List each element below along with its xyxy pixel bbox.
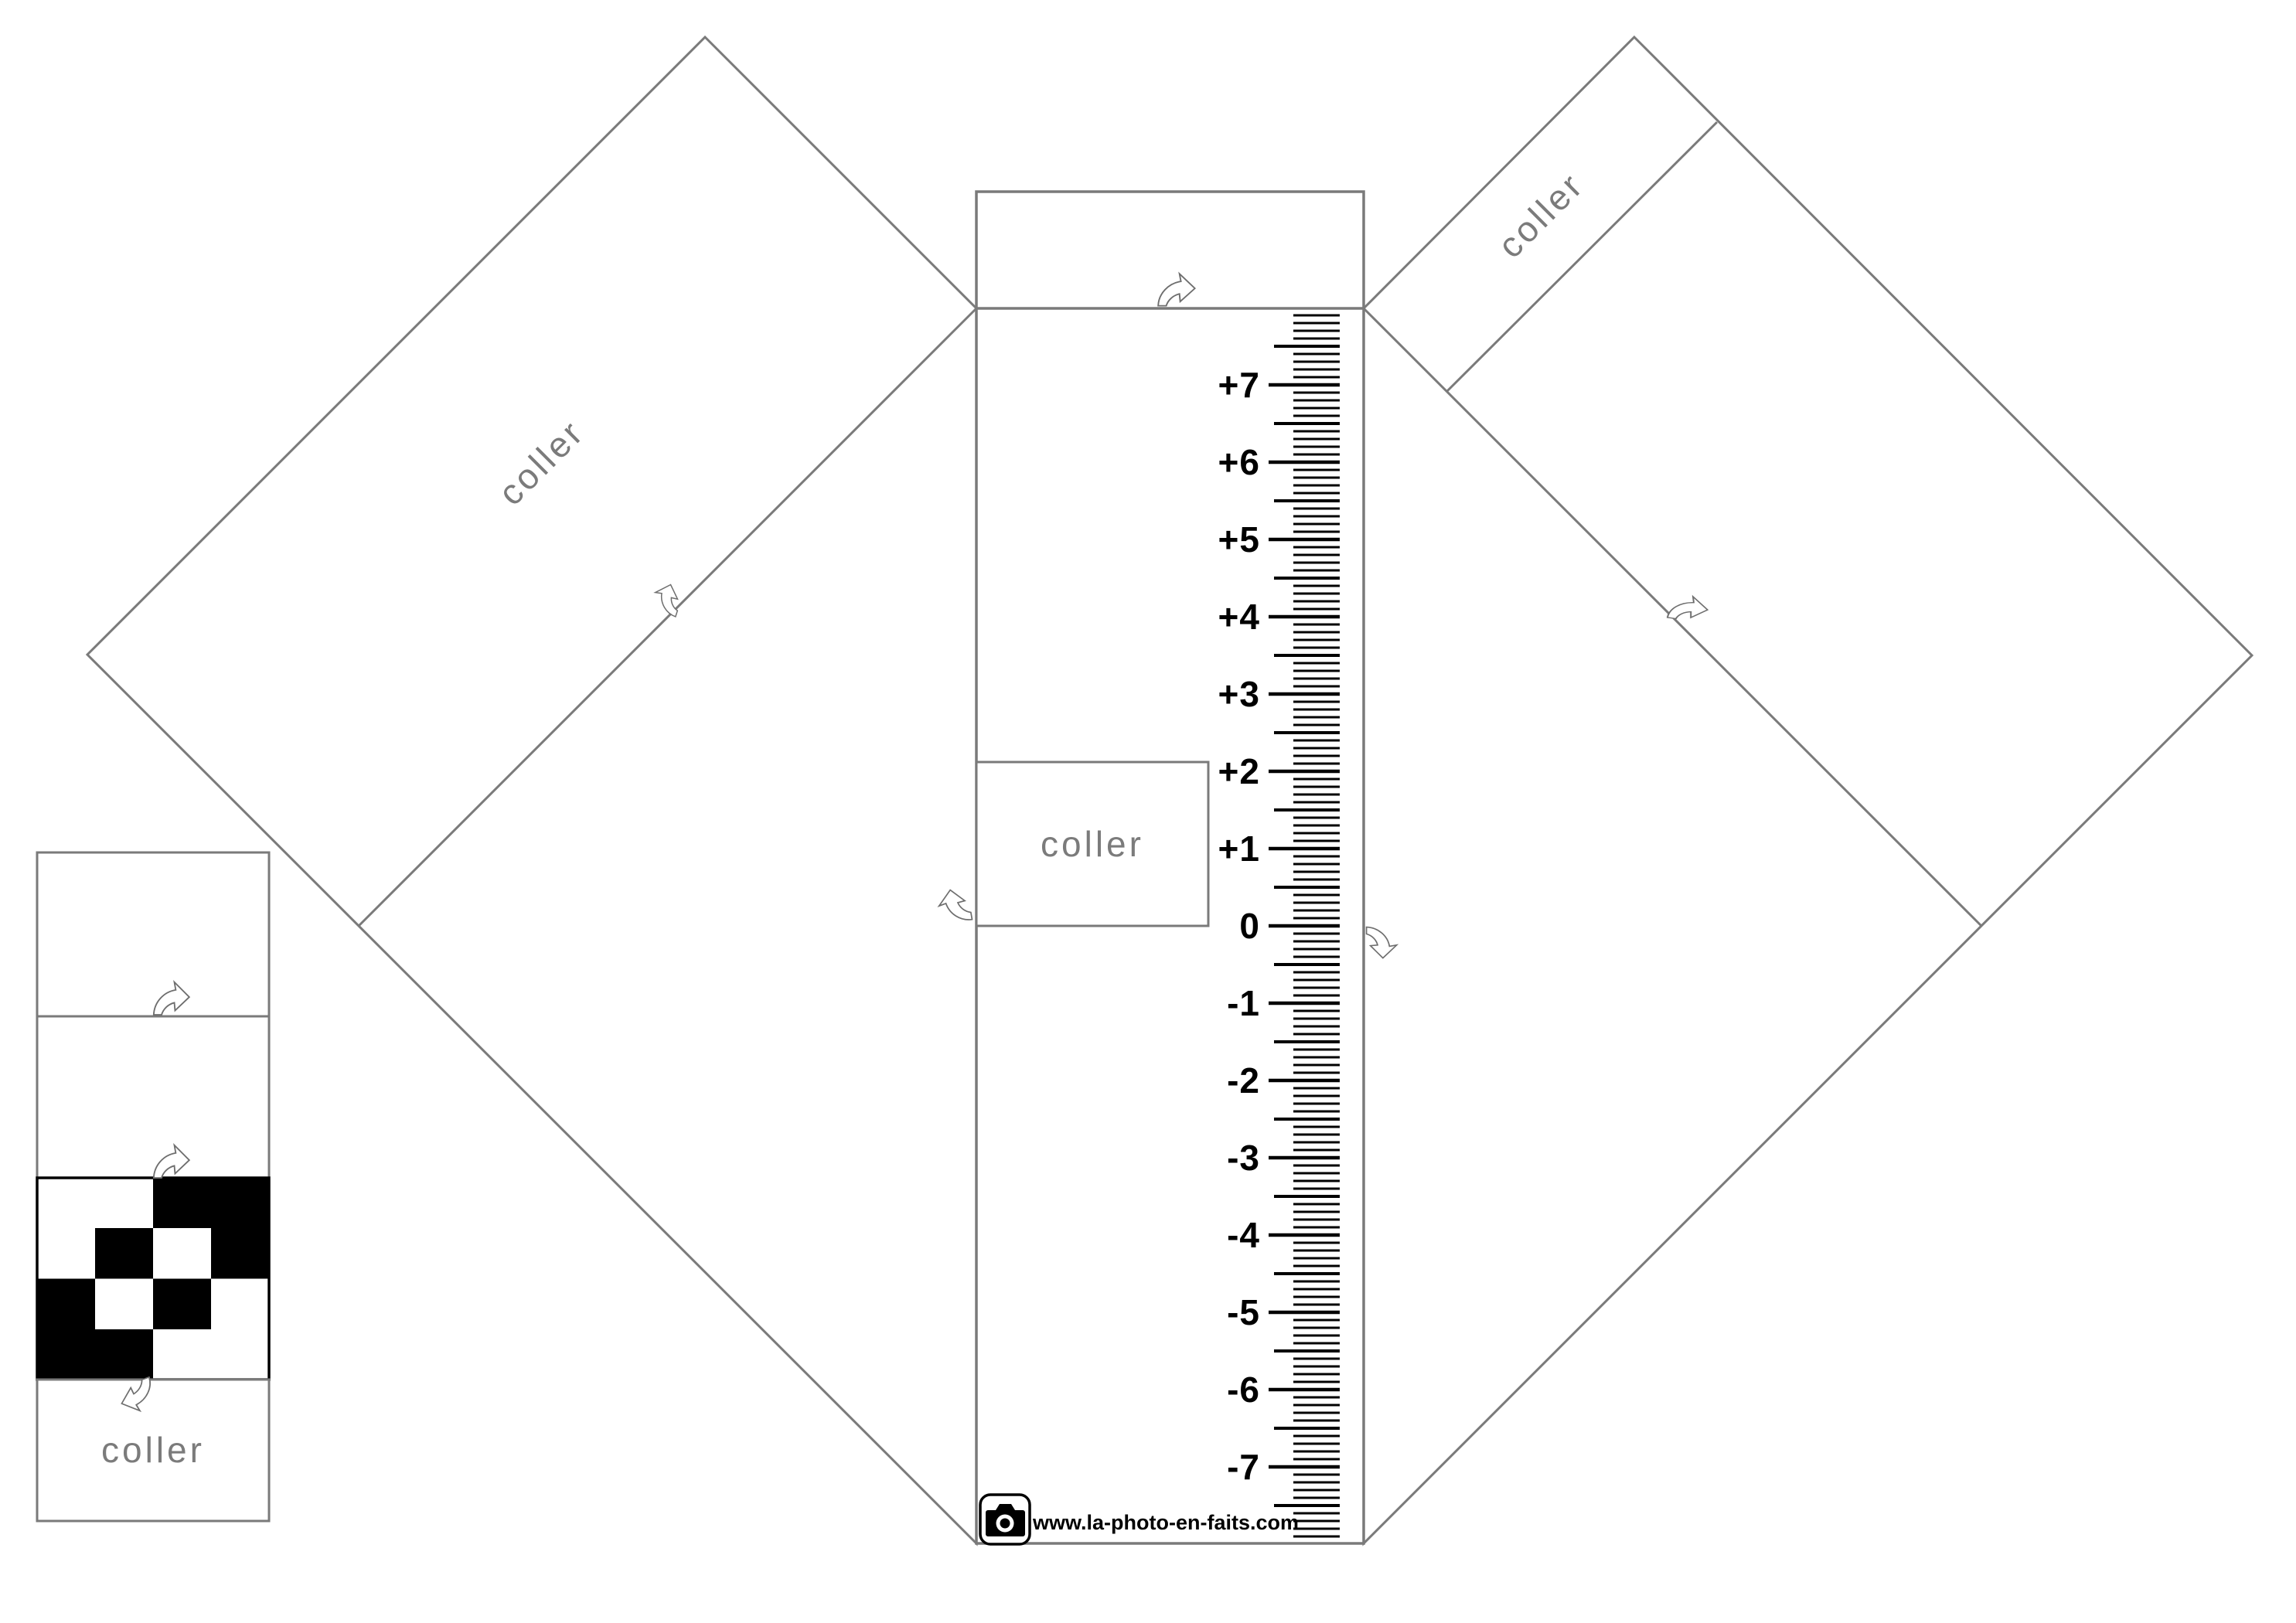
- right-panel-outline: [1364, 37, 2252, 1543]
- strip-middle-box: [37, 1016, 269, 1179]
- ruler-label--4: -4: [1105, 1216, 1260, 1254]
- ruler-label--3: -3: [1105, 1139, 1260, 1176]
- ruler-label-+1: +1: [1105, 830, 1260, 867]
- checkerboard-focus-target: [37, 1178, 269, 1380]
- ruler-label--2: -2: [1105, 1062, 1260, 1099]
- camera-icon: [980, 1495, 1030, 1544]
- ruler-label-+2: +2: [1105, 753, 1260, 790]
- ruler-label--6: -6: [1105, 1371, 1260, 1408]
- focus-chart-template-sheet: coller coller coller coller +7+6+5+4+3+2…: [0, 0, 2296, 1623]
- ruler-label--5: -5: [1105, 1294, 1260, 1331]
- website-url: www.la-photo-en-faits.com: [1033, 1509, 1299, 1536]
- ruler-label-+6: +6: [1105, 444, 1260, 481]
- ruler-label--1: -1: [1105, 985, 1260, 1022]
- strip-glue-label: coller: [101, 1429, 205, 1471]
- ruler-label-+4: +4: [1105, 598, 1260, 635]
- ruler-label-+7: +7: [1105, 366, 1260, 403]
- strip-top-box: [37, 852, 269, 1016]
- ruler-label-0: 0: [1105, 907, 1260, 944]
- ruler-label--7: -7: [1105, 1448, 1260, 1485]
- ruler-label-+3: +3: [1105, 675, 1260, 713]
- ruler-label-+5: +5: [1105, 521, 1260, 558]
